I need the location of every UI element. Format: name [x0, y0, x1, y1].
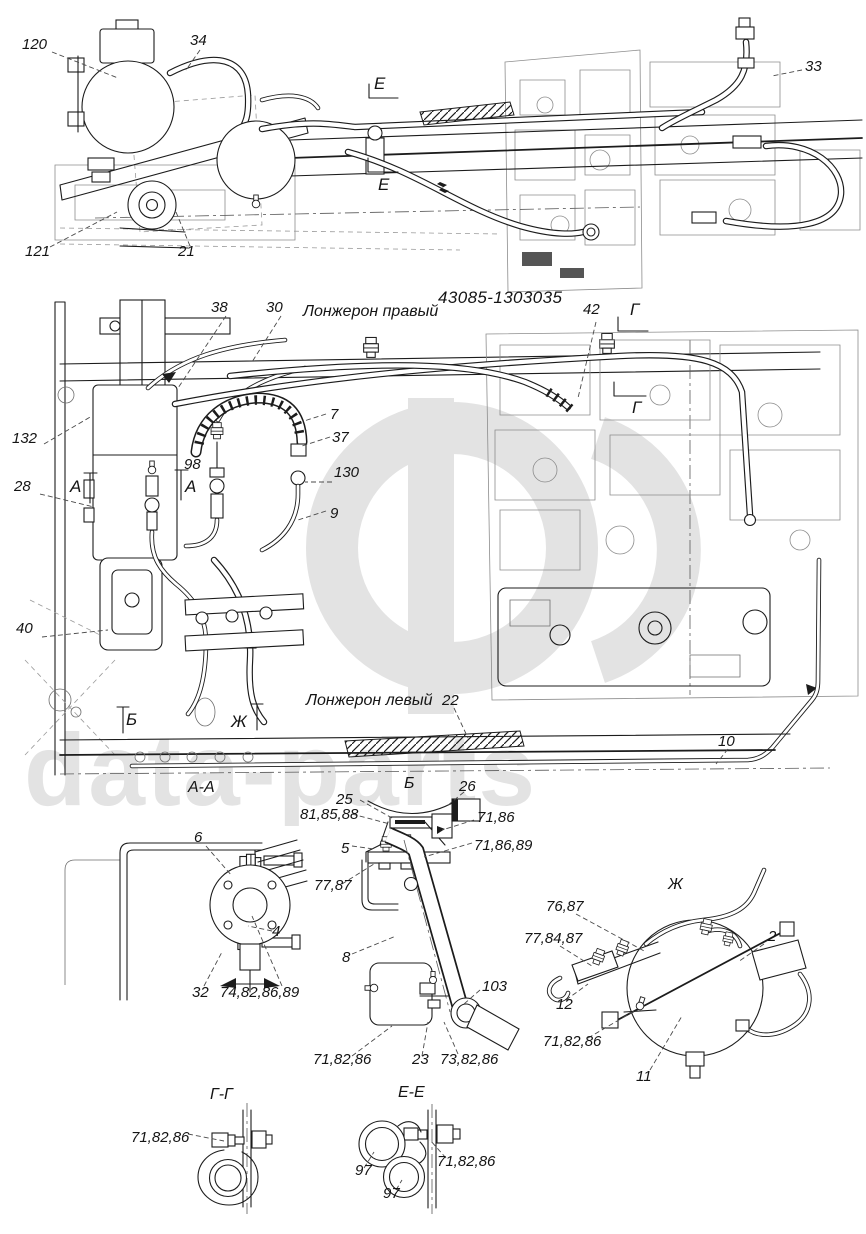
- callout-28: 28: [14, 478, 31, 495]
- callout-97-lower: 97: [383, 1185, 400, 1202]
- callout-marker-e-top: Е: [374, 74, 385, 94]
- callout-71-86: 71,86: [477, 809, 515, 826]
- detail-g-g: [198, 1103, 272, 1214]
- callout-120: 120: [22, 36, 47, 53]
- diagram-art: [0, 0, 866, 1234]
- watermark-logo: [332, 398, 679, 714]
- callout-8: 8: [342, 949, 350, 966]
- callout-37: 37: [332, 429, 349, 446]
- callout-74-82-86-89: 74,82,86,89: [220, 984, 299, 1001]
- callout-22: 22: [442, 692, 459, 709]
- callout-97-upper: 97: [355, 1162, 372, 1179]
- callout-76-87: 76,87: [546, 898, 584, 915]
- callout-132: 132: [12, 430, 37, 447]
- callout-21: 21: [178, 243, 195, 260]
- callout-marker-g-top: Г: [630, 300, 639, 320]
- callout-2: 2: [768, 928, 776, 945]
- callout-7: 7: [330, 406, 338, 423]
- callout-26: 26: [459, 778, 476, 795]
- callout-section-b: Б: [404, 775, 414, 793]
- callout-30: 30: [266, 299, 283, 316]
- callout-81-85-88: 81,85,88: [300, 806, 358, 823]
- callout-5: 5: [341, 840, 349, 857]
- detail-a-a: [65, 840, 307, 1000]
- callout-77-84-87: 77,84,87: [524, 930, 582, 947]
- callout-section-aa: А-А: [188, 779, 215, 797]
- callout-71-82-86-gg: 71,82,86: [131, 1129, 189, 1146]
- callout-40: 40: [16, 620, 33, 637]
- callout-marker-g-bottom: Г: [632, 398, 641, 418]
- callout-4: 4: [272, 923, 280, 940]
- top-view: [55, 18, 862, 292]
- callout-left-longeron: Лонжерон левый: [306, 692, 433, 710]
- callout-71-82-86-b: 71,82,86: [313, 1051, 371, 1068]
- callout-103: 103: [482, 978, 507, 995]
- callout-right-longeron: Лонжерон правый: [303, 303, 438, 321]
- callout-drawing-number: 43085-1303035: [438, 288, 562, 308]
- callout-marker-zh: Ж: [231, 712, 247, 732]
- callout-marker-b: Б: [126, 710, 137, 730]
- callout-9: 9: [330, 505, 338, 522]
- callout-130: 130: [334, 464, 359, 481]
- callout-11: 11: [636, 1068, 652, 1085]
- callout-23: 23: [412, 1051, 429, 1068]
- callout-12: 12: [556, 996, 573, 1013]
- callout-71-86-89: 71,86,89: [474, 837, 532, 854]
- callout-34: 34: [190, 32, 207, 49]
- callout-6: 6: [194, 829, 202, 846]
- callout-71-82-86-zh: 71,82,86: [543, 1033, 601, 1050]
- parts-diagram-page: data-parts: [0, 0, 866, 1234]
- callout-33: 33: [805, 58, 822, 75]
- callout-marker-e-bottom: Е: [378, 175, 389, 195]
- callout-marker-a-right: А: [185, 477, 196, 497]
- callout-section-ee: Е-Е: [398, 1084, 425, 1102]
- callout-121: 121: [25, 243, 50, 260]
- callout-77-87: 77,87: [314, 877, 352, 894]
- callout-38: 38: [211, 299, 228, 316]
- callout-marker-a-left: А: [70, 477, 81, 497]
- callout-71-82-86-ee: 71,82,86: [437, 1153, 495, 1170]
- callout-section-zh: Ж: [668, 876, 683, 894]
- callout-73-82-86: 73,82,86: [440, 1051, 498, 1068]
- callout-section-gg: Г-Г: [210, 1086, 233, 1104]
- callout-32: 32: [192, 984, 209, 1001]
- callout-10: 10: [718, 733, 735, 750]
- callout-42: 42: [583, 301, 600, 318]
- callout-98: 98: [184, 456, 201, 473]
